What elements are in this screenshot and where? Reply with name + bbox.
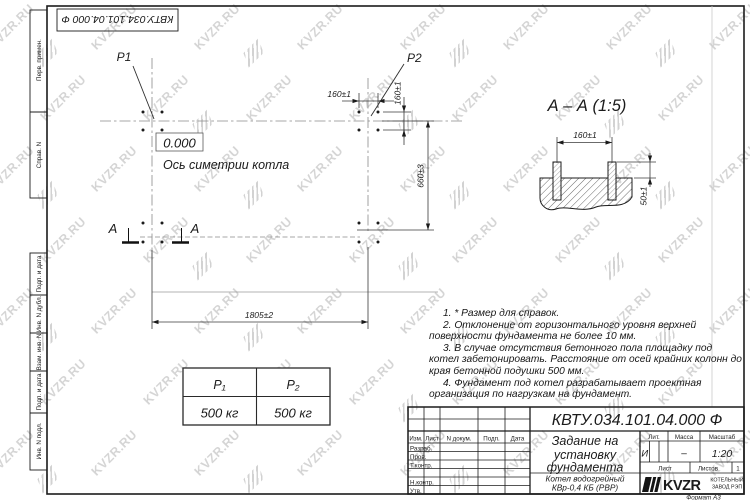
dim-160v-text: 160±1	[393, 81, 403, 105]
section-view: А – А (1:5) 160±1	[540, 97, 656, 210]
tb-title-line: Задание на	[552, 434, 619, 448]
drawing-canvas: Перв. примен. Справ. N Подп. и дата Инв.…	[0, 0, 750, 500]
note-item: 4. Фундамент под котел разрабатывает про…	[429, 378, 743, 401]
tb-header-cell: Изм.	[409, 436, 423, 443]
tb-title-line: фундамента	[547, 461, 624, 475]
load-table-header: P₁	[213, 378, 225, 392]
section-cut-marks	[122, 228, 189, 243]
note-item: 2. Отклонение от горизонтального уровня …	[429, 320, 743, 343]
margin-label: Подп. и дата	[36, 255, 43, 293]
rotated-designation: КВТУ.034.101.04.000 Ф	[62, 13, 174, 25]
axis-label: Ось симетрии котла	[163, 158, 289, 172]
p2-label: P2	[407, 51, 422, 65]
dim-1805-text: 1805±2	[245, 310, 274, 320]
dim-arrow	[606, 140, 613, 144]
tb-scale-label: Масштаб	[709, 434, 736, 441]
cut-letter-right: А	[190, 221, 200, 236]
tb-format-label: Формат А3	[686, 495, 721, 500]
load-table: P₁ P₂ 500 кг 500 кг	[183, 368, 330, 425]
left-margin-labels: Перв. примен. Справ. N Подп. и дата Инв.…	[35, 39, 43, 460]
margin-label: Перв. примен.	[36, 39, 43, 81]
note-item: 1. * Размер для справок.	[429, 308, 743, 320]
level-mark: 0.000	[163, 136, 196, 151]
tb-row-label: Утв.	[410, 488, 422, 495]
tb-designation: КВТУ.034.101.04.000 Ф	[552, 412, 723, 429]
note-item: 3. В случае отсутствия бетонного пола пл…	[429, 343, 743, 378]
margin-label: Инв. N дубл.	[35, 295, 43, 332]
dim-arrow	[402, 130, 406, 137]
dim-arrow	[557, 140, 564, 144]
tb-sheets-value: 1	[736, 466, 740, 473]
dim-section-50-text: 50±1	[639, 186, 649, 205]
load-table-value: 500 кг	[201, 406, 239, 421]
tb-row-label: Т.контр.	[410, 463, 433, 470]
anchor-bolt-points	[142, 111, 380, 244]
margin-label: Взам. инв. N	[36, 333, 43, 370]
dim-arrow	[426, 224, 430, 231]
top-designation-stamp: КВТУ.034.101.04.000 Ф	[57, 9, 178, 31]
margin-label: Подп. и дата	[36, 373, 43, 411]
dim-arrow	[152, 320, 159, 324]
tb-header-cell: Лист	[425, 436, 439, 443]
tb-row-label: Разраб.	[410, 446, 433, 453]
tb-lit-value: И	[641, 449, 648, 460]
tb-row-label: Пров.	[410, 454, 427, 461]
dim-arrow	[362, 320, 369, 324]
section-title: А – А (1:5)	[547, 97, 627, 115]
dim-arrow	[648, 178, 652, 185]
tb-sheets-label: Листов	[698, 466, 719, 473]
cut-letter-left: А	[108, 221, 118, 236]
margin-label: Инв. N подл.	[36, 422, 43, 459]
p1-label: P1	[117, 50, 132, 64]
tb-row-label: Н.контр.	[410, 480, 434, 487]
load-table-header: P₂	[286, 378, 299, 392]
tb-header-cell: N докум.	[446, 436, 471, 443]
tb-sheet-label: Лист	[658, 466, 672, 473]
drawing-sheet: KVZR.RUKVZR.RUKVZR.RUKVZR.RUKVZR.RUKVZR.…	[0, 0, 750, 500]
dim-660-text: 660±3	[416, 164, 426, 188]
dim-arrow	[402, 106, 406, 113]
load-table-value: 500 кг	[274, 406, 312, 421]
leader-lines	[133, 64, 404, 119]
tb-mass-value: –	[681, 449, 687, 460]
tb-scale-value: 1:20	[712, 448, 733, 460]
plan-view: P1 P2 0.000 Ось симетрии котла 160±1	[100, 50, 465, 329]
dim-section-160-text: 160±1	[573, 130, 597, 140]
title-block: Изм. Лист N докум. Подп. Дата Разраб. Пр…	[408, 407, 744, 500]
kvzr-logo: KVZR КОТЕЛЬНЫЙ ЗАВОД РЭП	[642, 476, 744, 495]
dim-arrow	[426, 121, 430, 128]
tb-mass-label: Масса	[675, 434, 694, 441]
tb-product-line: КВр-0,4 КБ (РВР)	[552, 483, 619, 493]
tb-lit-label: Лит.	[648, 434, 660, 441]
tb-logo-text: KVZR	[663, 478, 702, 494]
tb-header-cell: Подп.	[483, 436, 500, 443]
margin-label: Справ. N	[36, 141, 43, 168]
notes-block: 1. * Размер для справок. 2. Отклонение о…	[429, 308, 743, 401]
dim-arrow	[353, 99, 360, 103]
tb-logo-line: ЗАВОД РЭП	[712, 485, 742, 491]
tb-header-cell: Дата	[511, 436, 525, 443]
tb-logo-line: КОТЕЛЬНЫЙ	[710, 476, 743, 484]
dim-section-160	[557, 137, 612, 163]
dim-arrow	[648, 156, 652, 163]
dim-160h-text: 160±1	[327, 89, 351, 99]
